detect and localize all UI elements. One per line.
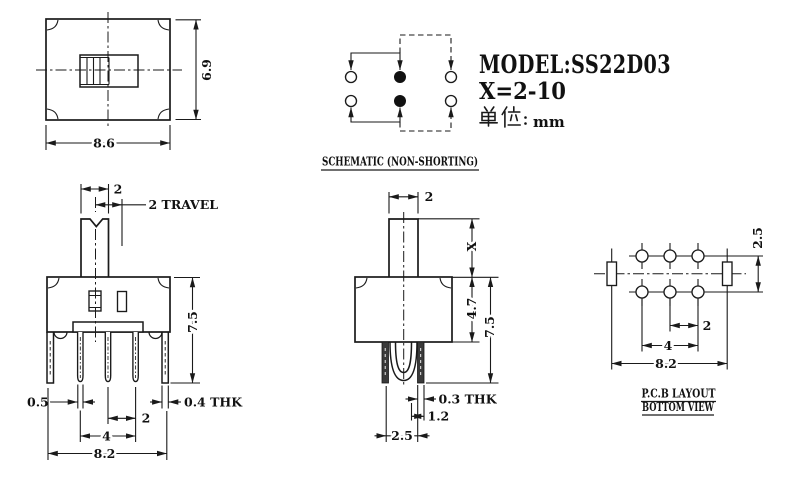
terminal-open xyxy=(446,96,457,107)
dim-top-width: 8.6 xyxy=(93,136,115,151)
dim-width: 8.2 xyxy=(655,356,677,371)
front-view: 2 2 TRAVEL 7.5 0.5 0.4 THK 2 4 8.2 xyxy=(27,181,243,461)
dim-terminal-width: 0.5 xyxy=(27,395,49,410)
contact-link-solid-top xyxy=(351,53,400,70)
extension-lines xyxy=(389,192,418,214)
dim-stem-height: X xyxy=(464,241,479,251)
unit-cjk-glyphs xyxy=(480,107,520,127)
dim-row-spacing: 2.5 xyxy=(750,227,765,249)
dim-bracket-thk: 0.4 THK xyxy=(184,395,243,410)
extension-lines xyxy=(162,386,168,409)
technical-drawing: 8.6 6.9 SCHEMATIC (NON-SHORTING) MODEL:S… xyxy=(0,0,800,480)
dim-pin-thk: 0.3 THK xyxy=(439,391,498,406)
pcb-hole xyxy=(692,286,704,298)
dim-pitch: 2 xyxy=(142,411,151,426)
dim-height: 7.5 xyxy=(482,316,497,338)
unit-colon xyxy=(524,122,527,125)
model-number: MODEL:SS22D03 xyxy=(479,50,671,79)
terminal-common xyxy=(394,95,406,107)
dim-travel: 2 TRAVEL xyxy=(149,197,219,212)
dim-height: 7.5 xyxy=(185,311,200,333)
actuator-outline xyxy=(81,219,109,277)
dim-top-height: 6.9 xyxy=(199,59,214,81)
dim-pin-span: 2.5 xyxy=(391,428,413,443)
contact-link-dashed-bottom xyxy=(400,108,451,132)
pcb-hole xyxy=(692,250,704,262)
mount-slot xyxy=(723,262,733,286)
extension-lines xyxy=(81,184,109,214)
top-view: 8.6 6.9 xyxy=(36,12,214,151)
dim-span: 4 xyxy=(102,428,111,443)
pcb-hole xyxy=(636,250,648,262)
schematic-view: SCHEMATIC (NON-SHORTING) xyxy=(321,35,479,170)
dim-width: 8.2 xyxy=(94,446,116,461)
x-range: X=2-10 xyxy=(479,78,566,105)
title-block: MODEL:SS22D03 X=2-10 mm xyxy=(479,50,671,131)
side-view: 2 X 4.7 7.5 0.3 THK 1.2 2.5 xyxy=(355,189,499,443)
dim-span: 4 xyxy=(664,338,673,353)
contact-link-dashed-top xyxy=(400,35,451,70)
pin-centerlines xyxy=(80,337,135,378)
bottom-view-label: BOTTOM VIEW xyxy=(642,399,715,414)
extension-lines xyxy=(122,199,146,246)
terminal-open xyxy=(346,72,357,83)
extension-lines xyxy=(78,385,83,409)
contact-link-solid-bottom xyxy=(351,108,400,123)
datasheet-page: 8.6 6.9 SCHEMATIC (NON-SHORTING) MODEL:S… xyxy=(0,0,800,480)
terminal-open xyxy=(446,72,457,83)
dim-body-depth: 4.7 xyxy=(464,298,479,320)
pcb-hole xyxy=(636,286,648,298)
pcb-hole xyxy=(664,250,676,262)
pcb-hole xyxy=(664,286,676,298)
schematic-label: SCHEMATIC (NON-SHORTING) xyxy=(322,154,478,169)
pcb-layout-view: 2.5 2 4 8.2 P.C.B LAYOUT BOTTOM VIEW xyxy=(594,227,765,415)
dim-knob-width: 2 xyxy=(114,181,123,196)
mount-slot xyxy=(607,262,617,286)
dim-pitch: 2 xyxy=(703,318,712,333)
dim-knob-depth: 2 xyxy=(425,189,434,204)
unit-colon xyxy=(524,116,527,119)
terminal-open xyxy=(346,96,357,107)
terminal-common xyxy=(394,71,406,83)
unit-value: mm xyxy=(533,113,565,131)
dim-pin-offset: 1.2 xyxy=(428,409,450,424)
base-plate xyxy=(73,322,143,332)
